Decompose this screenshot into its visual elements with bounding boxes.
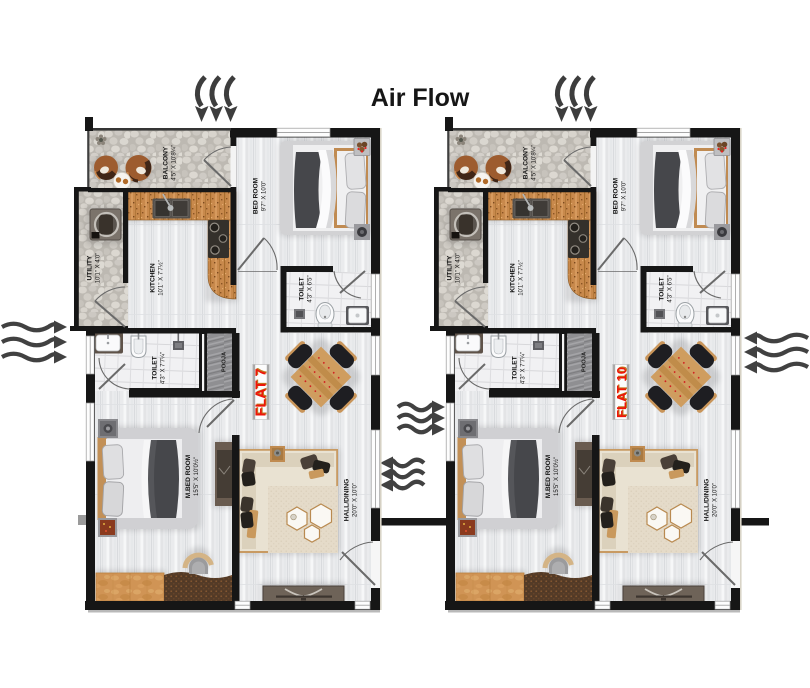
svg-text:TOILET: TOILET: [152, 356, 159, 379]
svg-text:HALL/DINING: HALL/DINING: [344, 479, 351, 522]
svg-text:4'5" X 10'8¼": 4'5" X 10'8¼": [532, 145, 538, 181]
svg-text:TOILET: TOILET: [299, 277, 306, 300]
svg-text:KITCHEN: KITCHEN: [510, 263, 517, 293]
svg-text:POOJA: POOJA: [582, 351, 588, 372]
svg-text:FLAT 10: FLAT 10: [614, 367, 629, 418]
svg-text:10'1" X 7'7½": 10'1" X 7'7½": [158, 260, 165, 296]
svg-text:M.BED ROOM: M.BED ROOM: [185, 454, 192, 498]
svg-text:BED ROOM: BED ROOM: [253, 177, 260, 214]
svg-text:15'5" X 10'0½": 15'5" X 10'0½": [193, 457, 200, 496]
svg-text:KITCHEN: KITCHEN: [150, 263, 157, 293]
svg-text:4'3" X 6'5": 4'3" X 6'5": [308, 275, 314, 302]
svg-text:20'0" X 10'0": 20'0" X 10'0": [353, 483, 359, 517]
svg-text:HALL/DINING: HALL/DINING: [704, 479, 711, 522]
svg-text:BED ROOM: BED ROOM: [613, 177, 620, 214]
svg-text:BALCONY: BALCONY: [163, 146, 170, 179]
svg-text:4'3" X 7'7¼": 4'3" X 7'7¼": [521, 352, 527, 384]
svg-text:POOJA: POOJA: [222, 351, 228, 372]
svg-text:TOILET: TOILET: [512, 356, 519, 379]
svg-text:10'1" X 4'0": 10'1" X 4'0": [96, 253, 102, 284]
svg-text:UTILITY: UTILITY: [447, 255, 454, 281]
svg-text:10'1" X 7'7½": 10'1" X 7'7½": [518, 260, 525, 296]
svg-text:4'3" X 7'7¼": 4'3" X 7'7¼": [161, 352, 167, 384]
svg-text:M.BED ROOM: M.BED ROOM: [545, 454, 552, 498]
svg-text:UTILITY: UTILITY: [87, 255, 94, 281]
svg-text:9'7" X 10'0": 9'7" X 10'0": [622, 181, 628, 212]
svg-text:9'7" X 10'0": 9'7" X 10'0": [262, 181, 268, 212]
svg-text:TOILET: TOILET: [659, 277, 666, 300]
svg-text:BALCONY: BALCONY: [523, 146, 530, 179]
svg-text:4'5" X 10'8¼": 4'5" X 10'8¼": [172, 145, 178, 181]
svg-text:15'5" X 10'0½": 15'5" X 10'0½": [553, 457, 560, 496]
svg-text:FLAT 7: FLAT 7: [253, 368, 269, 416]
svg-text:4'3" X 6'5": 4'3" X 6'5": [668, 275, 674, 302]
svg-text:Air Flow: Air Flow: [371, 84, 470, 112]
svg-text:10'1" X 4'0": 10'1" X 4'0": [456, 253, 462, 284]
svg-text:20'0" X 10'0": 20'0" X 10'0": [713, 483, 719, 517]
